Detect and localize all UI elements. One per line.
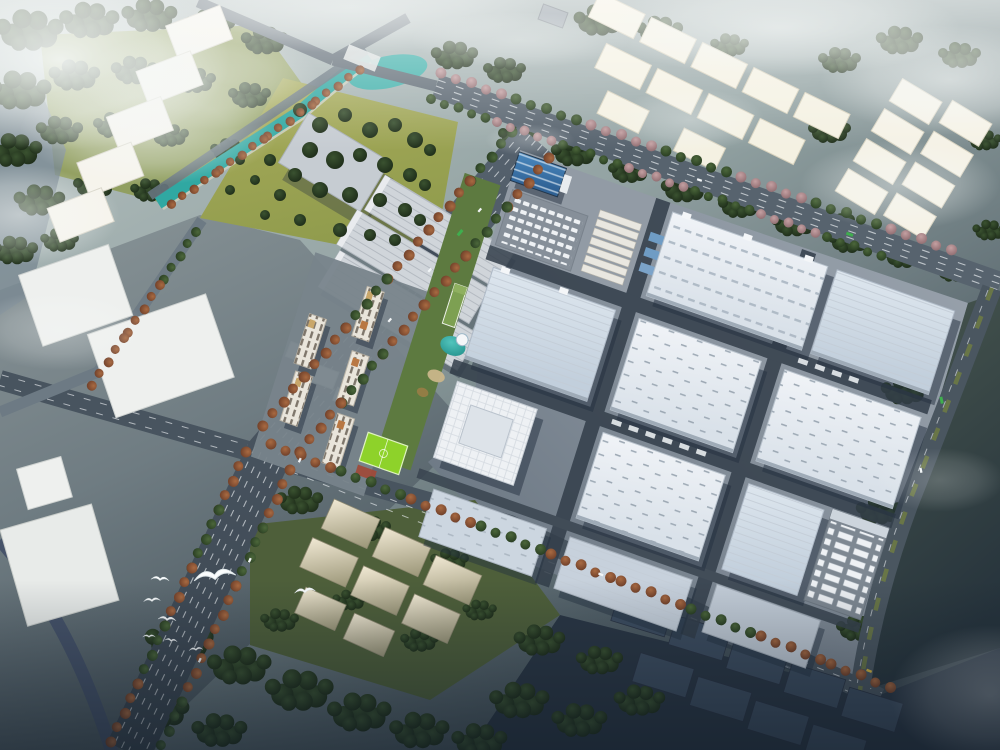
render-viewport: Aerial master-plan rendering of an indus… (0, 0, 1000, 750)
aerial-render: Aerial master-plan rendering of an indus… (0, 0, 1000, 750)
bottom-vignette (0, 580, 1000, 750)
